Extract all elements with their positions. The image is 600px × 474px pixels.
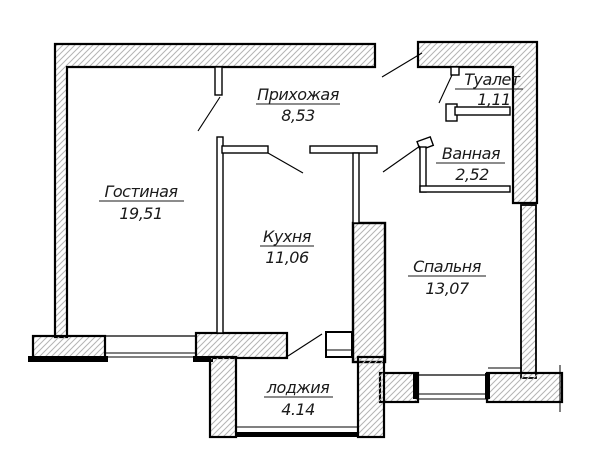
hallway-area: 8,53	[281, 106, 315, 125]
right-exterior-wall-lower	[521, 205, 536, 378]
kitchen-bedroom-pillar-wall	[353, 223, 385, 362]
toilet-door-stub	[451, 67, 459, 75]
hallway-name: Прихожая	[257, 85, 340, 104]
loggia-right-wall	[358, 357, 384, 437]
bedroom-name: Спальня	[413, 257, 482, 276]
living-name: Гостиная	[104, 182, 178, 201]
loggia-door-leaf	[288, 334, 322, 356]
bathroom-door-leaf	[383, 146, 420, 172]
loggia-name: лоджия	[266, 378, 330, 397]
bathroom-name: Ванная	[442, 144, 501, 163]
kitchen-bedroom-wall-stem	[353, 153, 359, 223]
kitchen-door-leaf	[268, 153, 303, 173]
loggia-left-wall	[210, 357, 236, 437]
bedroom-window-jamb-left	[413, 373, 419, 399]
living-bottom-wall-left	[33, 336, 105, 358]
loggia-rail	[236, 432, 358, 437]
living-window-sill-left	[28, 356, 108, 362]
living-kitchen-wall	[217, 137, 223, 333]
entrance-door-leaf	[382, 53, 422, 77]
kitchen-bottom-wall	[196, 333, 287, 358]
living-door-jamb-stub	[215, 67, 222, 95]
bedroom-window-jamb-right	[485, 373, 490, 399]
kitchen-name: Кухня	[263, 227, 312, 246]
toilet-name: Туалет	[464, 70, 521, 89]
hall-kitchen-wall-right	[310, 146, 377, 153]
bedroom-area: 13,07	[425, 279, 470, 298]
hall-kitchen-wall-left	[222, 146, 268, 153]
living-door-leaf	[198, 97, 220, 131]
bathroom-bottom-wall	[420, 186, 510, 192]
bedroom-bottom-wall-right	[487, 373, 562, 402]
loggia-area: 4.14	[281, 400, 315, 419]
bedroom-bottom-wall-left	[380, 373, 418, 402]
living-area: 19,51	[119, 204, 162, 223]
floor-plan: Прихожая 8,53 Туалет 1,11 Ванная 2,52 Го…	[0, 0, 600, 474]
kitchen-area: 11,06	[265, 248, 309, 267]
loggia-window-block	[326, 332, 352, 357]
toilet-area: 1,11	[477, 90, 511, 109]
floor-plan-svg: Прихожая 8,53 Туалет 1,11 Ванная 2,52 Го…	[0, 0, 600, 474]
bathroom-left-wall	[420, 147, 426, 192]
bathroom-area: 2,52	[455, 165, 489, 184]
toilet-door-leaf	[439, 75, 452, 103]
